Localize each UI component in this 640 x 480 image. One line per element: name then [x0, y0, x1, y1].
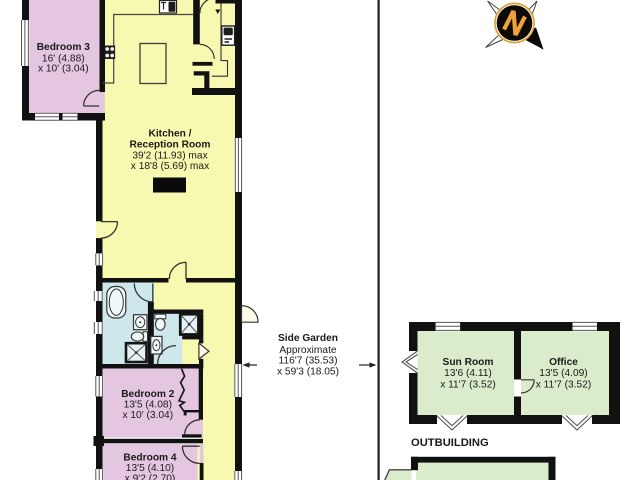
svg-text:13'5 (4.10): 13'5 (4.10) — [126, 463, 174, 474]
svg-text:OUTBUILDING: OUTBUILDING — [411, 437, 489, 449]
svg-text:16' (4.88): 16' (4.88) — [42, 53, 85, 64]
svg-text:13'5 (4.08): 13'5 (4.08) — [124, 400, 172, 411]
svg-text:Reception Room: Reception Room — [130, 139, 211, 150]
svg-text:x 10' (3.04): x 10' (3.04) — [38, 64, 89, 75]
svg-text:Bedroom 3: Bedroom 3 — [37, 42, 91, 53]
svg-text:13'5 (4.09): 13'5 (4.09) — [539, 368, 587, 379]
svg-text:Kitchen /: Kitchen / — [148, 128, 191, 139]
svg-text:Sun Room: Sun Room — [443, 357, 494, 368]
svg-text:x 59'3 (18.05): x 59'3 (18.05) — [277, 367, 339, 378]
svg-text:x 10' (3.04): x 10' (3.04) — [122, 410, 173, 421]
svg-text:Side Garden: Side Garden — [278, 333, 338, 344]
svg-text:x 11'7 (3.52): x 11'7 (3.52) — [536, 380, 592, 391]
svg-text:13'6 (4.11): 13'6 (4.11) — [444, 368, 492, 379]
svg-text:x 11'7 (3.52): x 11'7 (3.52) — [440, 380, 496, 391]
svg-text:x 18'8 (5.69) max: x 18'8 (5.69) max — [131, 161, 209, 172]
svg-text:Bedroom 2: Bedroom 2 — [121, 389, 175, 400]
svg-text:Approximate: Approximate — [279, 345, 337, 356]
svg-text:116'7 (35.53): 116'7 (35.53) — [279, 356, 338, 367]
svg-text:Office: Office — [549, 357, 578, 368]
svg-text:Bedroom 4: Bedroom 4 — [123, 453, 177, 464]
svg-text:x 9'2 (2.70): x 9'2 (2.70) — [125, 473, 176, 480]
svg-text:39'2 (11.93) max: 39'2 (11.93) max — [132, 150, 207, 161]
